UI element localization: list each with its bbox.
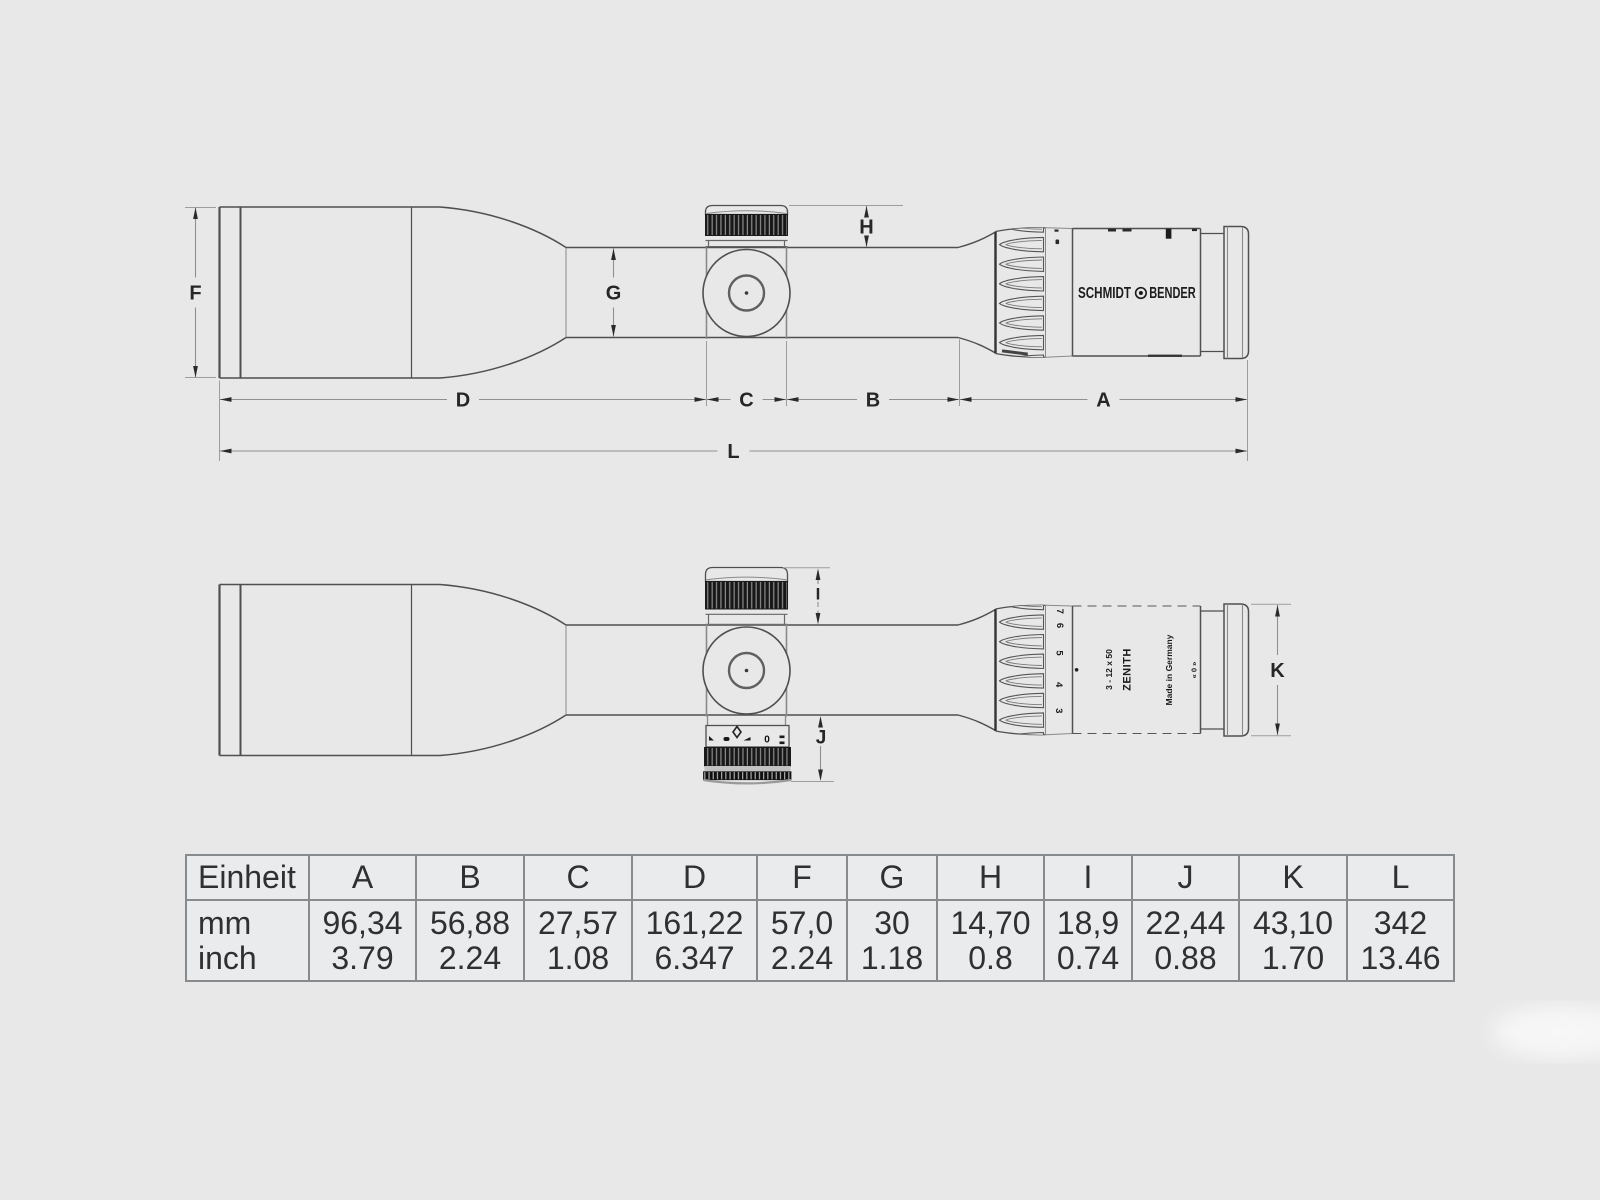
svg-text:J: J (816, 728, 827, 749)
svg-text:4: 4 (1053, 682, 1064, 688)
svg-text:3: 3 (1053, 708, 1064, 713)
svg-text:Made in Germany: Made in Germany (1164, 634, 1174, 705)
svg-text:BENDER: BENDER (1149, 285, 1196, 302)
svg-text:F: F (189, 283, 201, 305)
svg-text:B: B (866, 390, 880, 412)
svg-text:ZENITH: ZENITH (1121, 648, 1133, 691)
svg-text:C: C (739, 390, 753, 412)
svg-text:« 0 »: « 0 » (1189, 662, 1198, 679)
svg-text:A: A (1096, 390, 1110, 412)
svg-text:0: 0 (764, 735, 770, 746)
svg-text:D: D (456, 390, 470, 412)
svg-text:3 - 12 x 50: 3 - 12 x 50 (1104, 649, 1114, 690)
svg-text:I: I (816, 585, 821, 604)
svg-text:L: L (727, 441, 739, 463)
svg-text:SCHMIDT: SCHMIDT (1078, 285, 1131, 302)
svg-text:6: 6 (1054, 623, 1065, 628)
svg-text:G: G (606, 283, 622, 305)
svg-text:5: 5 (1053, 650, 1064, 656)
svg-text:H: H (859, 217, 873, 239)
svg-text:7: 7 (1054, 609, 1065, 614)
svg-text:K: K (1270, 660, 1285, 682)
